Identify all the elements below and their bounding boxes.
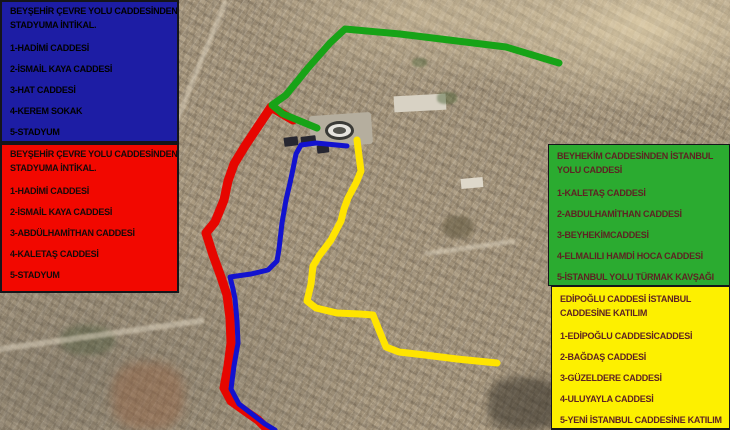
- legend-title: STADYUMA İNTİKAL.: [10, 162, 173, 176]
- legend-item: 4-ELMALILI HAMDİ HOCA CADDESİ: [557, 251, 725, 261]
- legend-item: 5-STADYUM: [10, 270, 173, 280]
- legend-title: STADYUMA İNTİKAL.: [10, 19, 173, 33]
- blue-route: [230, 143, 347, 430]
- legend-item: 2-İSMAİL KAYA CADDESİ: [10, 64, 173, 74]
- legend-item: 1-KALETAŞ CADDESİ: [557, 188, 725, 198]
- legend-item: 1-EDİPOĞLU CADDESİCADDESİ: [560, 331, 725, 341]
- green-route: [272, 29, 559, 128]
- legend-title: BEYŞEHİR ÇEVRE YOLU CADDESİNDEN: [10, 148, 173, 162]
- legend-box-red: BEYŞEHİR ÇEVRE YOLU CADDESİNDEN STADYUMA…: [0, 143, 179, 293]
- legend-box-blue: BEYŞEHİR ÇEVRE YOLU CADDESİNDEN STADYUMA…: [0, 0, 179, 143]
- legend-title: CADDESİNE KATILIM: [560, 307, 725, 321]
- legend-title: BEYHEKİM CADDESİNDEN İSTANBUL: [557, 150, 725, 164]
- legend-item: 3-GÜZELDERE CADDESİ: [560, 373, 725, 383]
- legend-item: 3-BEYHEKİMCADDESİ: [557, 230, 725, 240]
- legend-item: 2-BAĞDAŞ CADDESİ: [560, 352, 725, 362]
- legend-item: 5-STADYUM: [10, 127, 173, 137]
- legend-item: 5-İSTANBUL YOLU TÜRMAK KAVŞAĞI: [557, 272, 725, 282]
- legend-item: 2-ABDULHAMİTHAN CADDESİ: [557, 209, 725, 219]
- legend-item: 3-HAT CADDESİ: [10, 85, 173, 95]
- legend-title: YOLU CADDESİ: [557, 164, 725, 178]
- legend-box-green: BEYHEKİM CADDESİNDEN İSTANBUL YOLU CADDE…: [548, 144, 730, 286]
- legend-item: 3-ABDÜLHAMİTHAN CADDESİ: [10, 228, 173, 238]
- legend-title: EDİPOĞLU CADDESİ İSTANBUL: [560, 293, 725, 307]
- legend-item: 4-KEREM SOKAK: [10, 106, 173, 116]
- legend-box-yellow: EDİPOĞLU CADDESİ İSTANBUL CADDESİNE KATI…: [551, 286, 730, 430]
- yellow-route: [307, 140, 497, 363]
- legend-title: BEYŞEHİR ÇEVRE YOLU CADDESİNDEN: [10, 5, 173, 19]
- legend-item: 4-ULUYAYLA CADDESİ: [560, 394, 725, 404]
- legend-item: 1-HADİMİ CADDESİ: [10, 43, 173, 53]
- legend-item: 1-HADİMİ CADDESİ: [10, 186, 173, 196]
- red-route: [206, 107, 293, 430]
- legend-item: 4-KALETAŞ CADDESİ: [10, 249, 173, 259]
- stadium-route-map: BEYŞEHİR ÇEVRE YOLU CADDESİNDEN STADYUMA…: [0, 0, 730, 430]
- legend-item: 2-İSMAİL KAYA CADDESİ: [10, 207, 173, 217]
- legend-item: 5-YENİ İSTANBUL CADDESİNE KATILIM: [560, 415, 725, 425]
